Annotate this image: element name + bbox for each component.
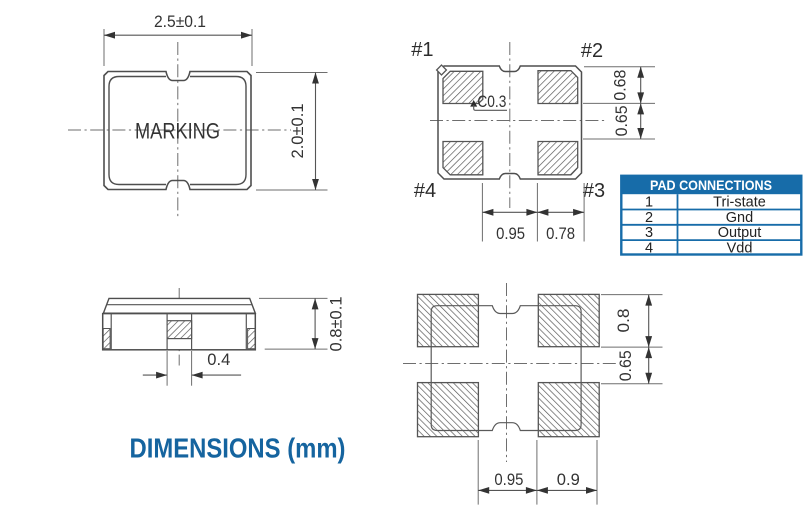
svg-text:0.4: 0.4 [207, 351, 230, 369]
svg-text:Vdd: Vdd [727, 241, 753, 257]
svg-text:#1: #1 [411, 39, 433, 61]
svg-text:2.5±0.1: 2.5±0.1 [154, 13, 206, 31]
svg-text:0.65: 0.65 [613, 105, 631, 136]
svg-text:C0.3: C0.3 [477, 92, 506, 111]
svg-text:3: 3 [645, 225, 653, 241]
svg-text:0.8: 0.8 [615, 309, 633, 333]
svg-text:Gnd: Gnd [726, 210, 753, 226]
svg-text:0.95: 0.95 [496, 225, 525, 243]
svg-text:#3: #3 [583, 180, 605, 202]
svg-text:1: 1 [645, 195, 653, 211]
svg-text:0.95: 0.95 [494, 471, 523, 489]
svg-text:#4: #4 [414, 180, 436, 202]
svg-text:0.78: 0.78 [546, 225, 575, 243]
svg-text:4: 4 [645, 241, 653, 257]
svg-text:#2: #2 [581, 40, 603, 62]
svg-text:MARKING: MARKING [135, 119, 220, 144]
svg-text:0.9: 0.9 [557, 471, 580, 489]
svg-text:0.8±0.1: 0.8±0.1 [328, 297, 346, 352]
svg-text:2.0±0.1: 2.0±0.1 [289, 104, 307, 159]
svg-text:0.65: 0.65 [617, 350, 635, 381]
svg-text:0.68: 0.68 [612, 70, 630, 101]
svg-text:PAD CONNECTIONS: PAD CONNECTIONS [650, 177, 772, 193]
svg-text:Output: Output [718, 225, 762, 241]
svg-text:2: 2 [645, 210, 653, 226]
svg-text:Tri-state: Tri-state [713, 195, 766, 211]
svg-text:DIMENSIONS (mm): DIMENSIONS (mm) [130, 433, 346, 464]
